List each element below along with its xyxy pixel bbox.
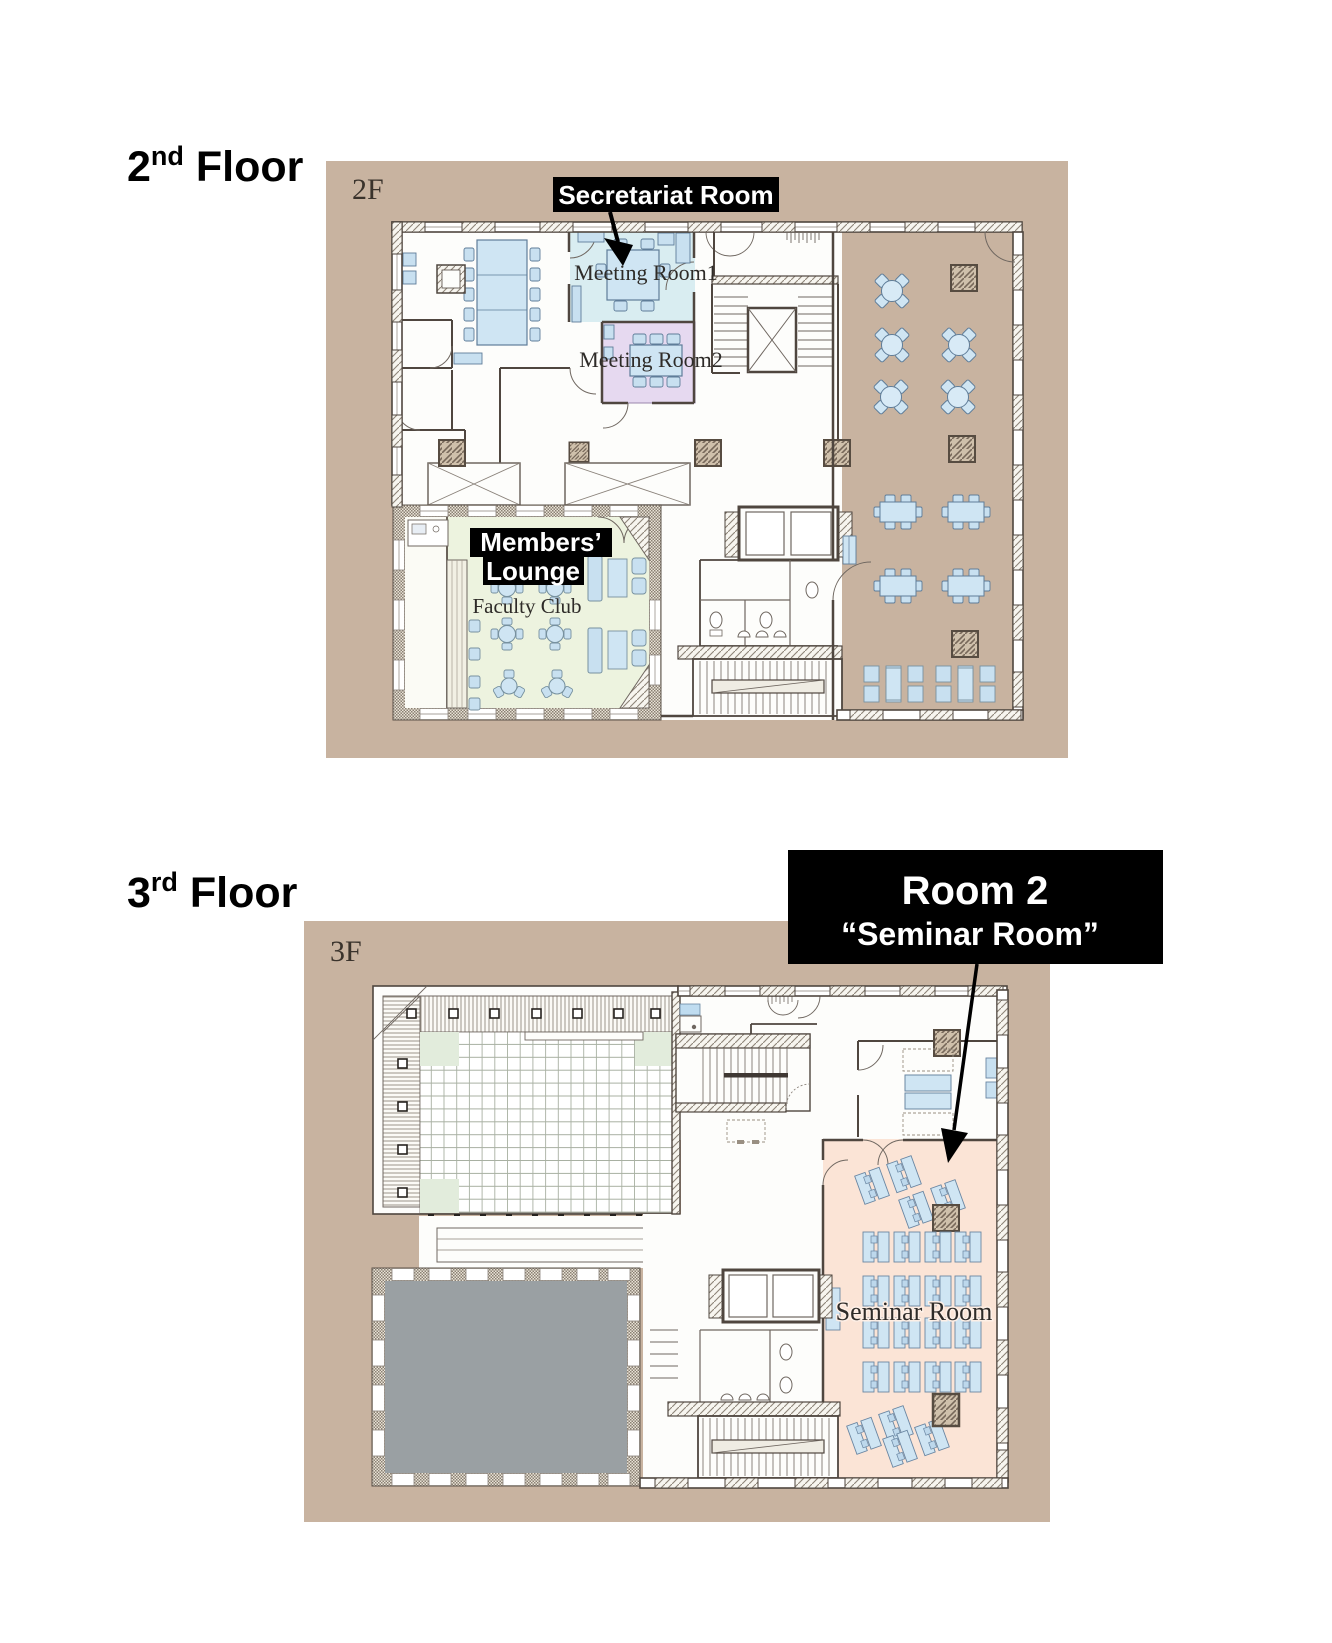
svg-text:“Seminar Room”: “Seminar Room” <box>841 916 1099 952</box>
svg-text:Secretariat Room: Secretariat Room <box>558 180 773 210</box>
svg-text:Lounge: Lounge <box>486 556 580 586</box>
svg-text:3F: 3F <box>330 935 362 968</box>
svg-text:2F: 2F <box>352 173 384 206</box>
svg-text:Meeting Room1: Meeting Room1 <box>574 260 718 285</box>
svg-text:Seminar Room: Seminar Room <box>836 1297 993 1326</box>
svg-text:Room 2: Room 2 <box>902 869 1049 913</box>
svg-text:Faculty Club: Faculty Club <box>472 594 581 618</box>
svg-text:Meeting Room2: Meeting Room2 <box>579 347 723 372</box>
svg-text:Members’: Members’ <box>480 527 601 557</box>
